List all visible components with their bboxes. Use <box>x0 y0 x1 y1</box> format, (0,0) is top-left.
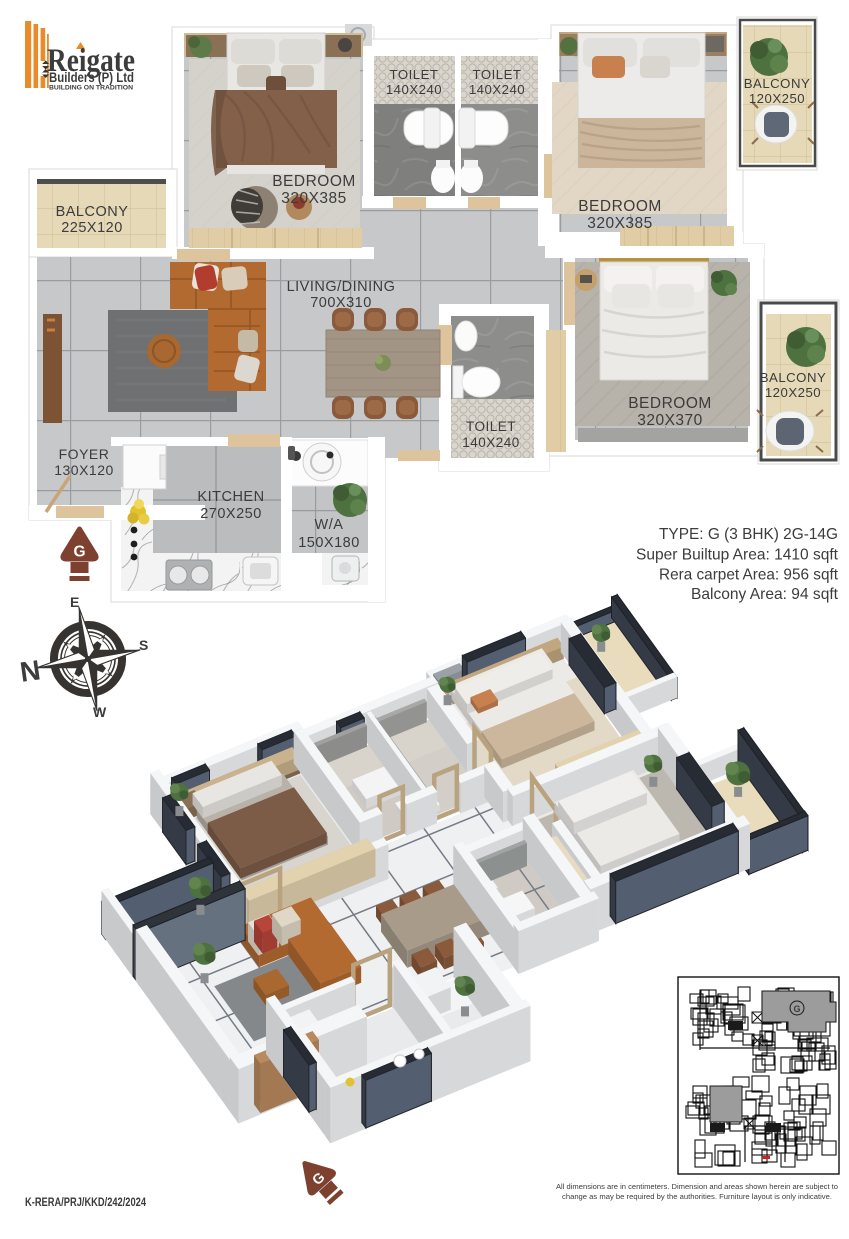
svg-text:320X385: 320X385 <box>587 215 653 232</box>
svg-text:BALCONY: BALCONY <box>56 204 129 220</box>
svg-text:225X120: 225X120 <box>61 220 123 236</box>
svg-text:change as may be required by t: change as may be required by the authori… <box>562 1192 832 1201</box>
svg-text:Rera carpet Area: 956 sqft: Rera carpet Area: 956 sqft <box>659 567 839 584</box>
svg-text:K-RERA/PRJ/KKD/242/2024: K-RERA/PRJ/KKD/242/2024 <box>25 1197 146 1209</box>
svg-text:140X240: 140X240 <box>462 435 520 450</box>
svg-text:150X180: 150X180 <box>298 535 360 551</box>
svg-text:320X385: 320X385 <box>281 190 347 207</box>
svg-text:TOILET: TOILET <box>473 67 522 82</box>
svg-text:BEDROOM: BEDROOM <box>628 395 712 412</box>
svg-text:G: G <box>73 544 85 561</box>
svg-text:E: E <box>70 594 79 610</box>
svg-text:BALCONY: BALCONY <box>744 76 811 91</box>
svg-text:G: G <box>793 1004 800 1014</box>
svg-text:N: N <box>18 654 42 688</box>
svg-text:W: W <box>93 704 107 720</box>
svg-text:LIVING/DINING: LIVING/DINING <box>287 279 396 295</box>
svg-text:S: S <box>139 637 148 653</box>
svg-text:FOYER: FOYER <box>59 446 110 462</box>
svg-text:270X250: 270X250 <box>200 506 262 522</box>
svg-text:140X240: 140X240 <box>469 82 525 97</box>
svg-text:120X250: 120X250 <box>749 91 805 106</box>
svg-text:Balcony Area: 94 sqft: Balcony Area: 94 sqft <box>691 586 839 603</box>
svg-text:130X120: 130X120 <box>54 462 114 478</box>
svg-text:BUILDING ON TRADITION: BUILDING ON TRADITION <box>49 86 133 92</box>
svg-text:KITCHEN: KITCHEN <box>197 489 264 505</box>
svg-text:700X310: 700X310 <box>310 295 372 311</box>
svg-text:W/A: W/A <box>315 517 344 533</box>
svg-text:BALCONY: BALCONY <box>760 370 827 385</box>
svg-text:Super Builtup Area: 1410 sqft: Super Builtup Area: 1410 sqft <box>636 547 839 564</box>
svg-text:320X370: 320X370 <box>637 412 703 429</box>
svg-text:TOILET: TOILET <box>466 419 516 434</box>
svg-text:TYPE: G (3 BHK) 2G-14G: TYPE: G (3 BHK) 2G-14G <box>659 526 838 543</box>
svg-text:120X250: 120X250 <box>765 385 821 400</box>
svg-text:BEDROOM: BEDROOM <box>272 173 356 190</box>
svg-text:All dimensions are in centimet: All dimensions are in centimeters. Dimen… <box>556 1182 838 1191</box>
svg-text:Builders (P) Ltd: Builders (P) Ltd <box>49 70 134 85</box>
svg-text:140X240: 140X240 <box>386 82 442 97</box>
svg-text:BEDROOM: BEDROOM <box>578 198 662 215</box>
svg-text:TOILET: TOILET <box>390 67 439 82</box>
